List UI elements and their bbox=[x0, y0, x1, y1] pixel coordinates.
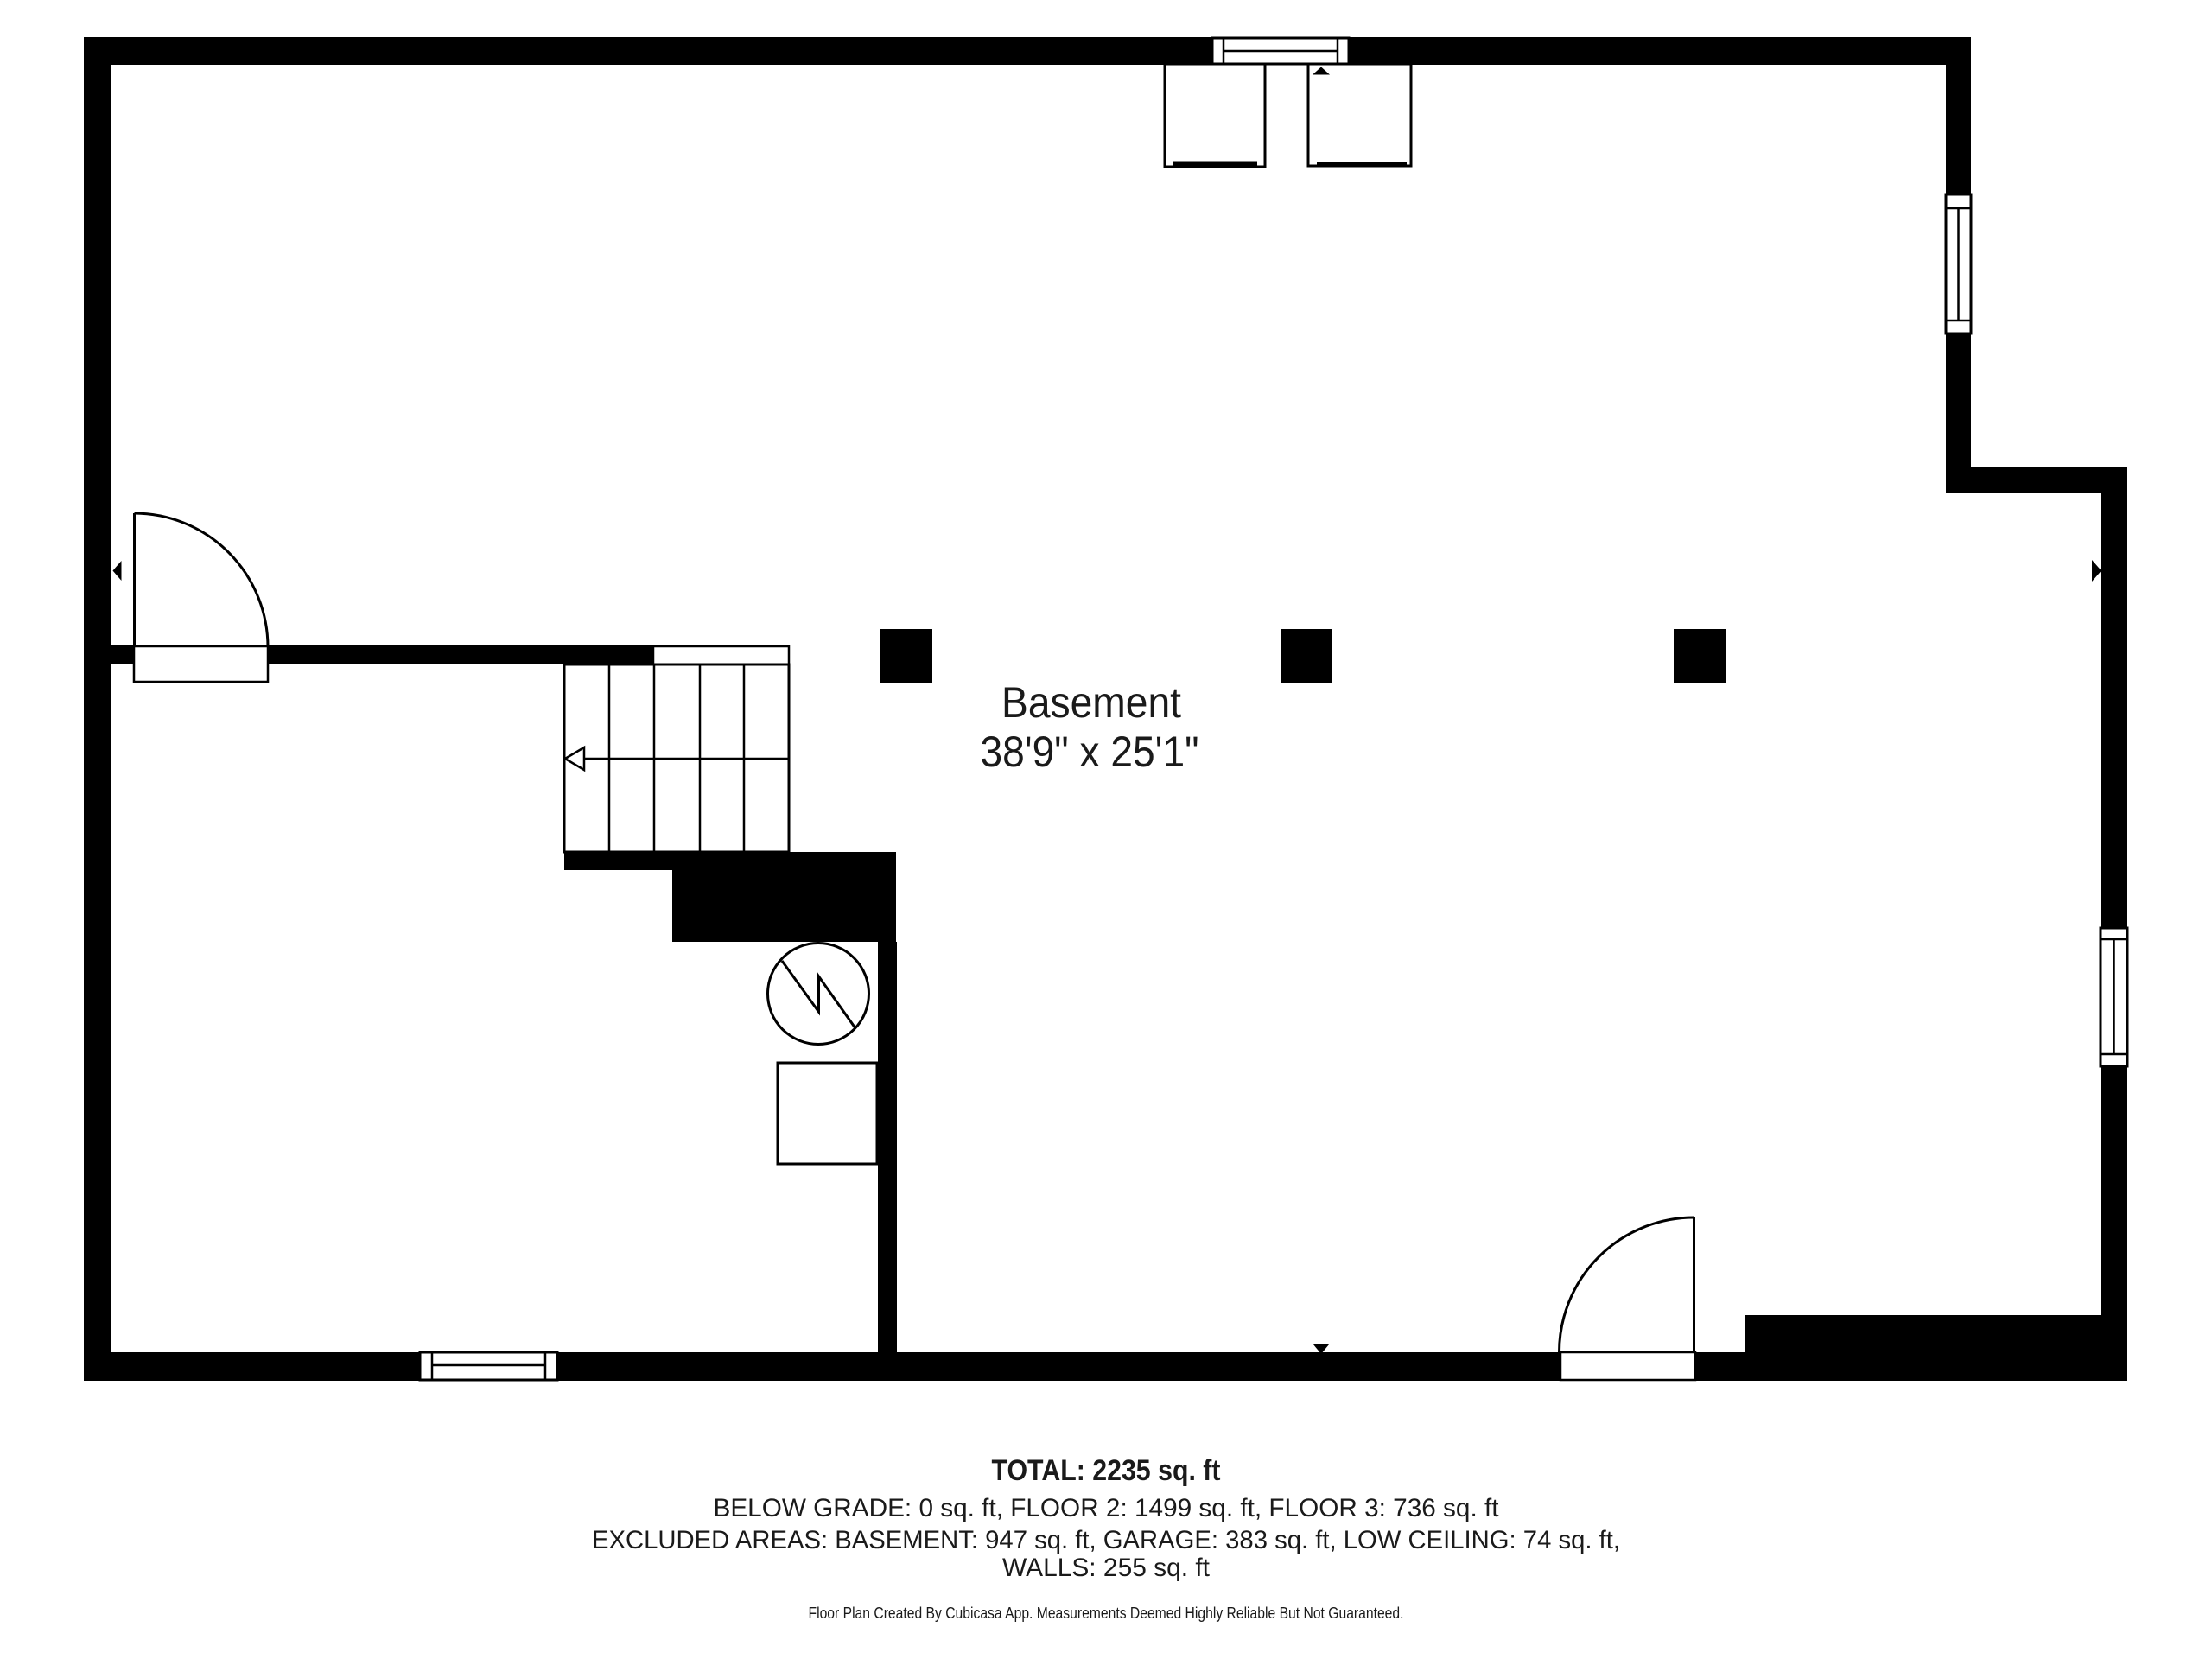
svg-text:Floor Plan Created By Cubicasa: Floor Plan Created By Cubicasa App. Meas… bbox=[809, 1605, 1404, 1622]
svg-text:WALLS: 255 sq. ft: WALLS: 255 sq. ft bbox=[1002, 1554, 1211, 1582]
svg-text:BELOW GRADE: 0 sq. ft, FLOOR 2: BELOW GRADE: 0 sq. ft, FLOOR 2: 1499 sq.… bbox=[714, 1494, 1500, 1522]
svg-text:EXCLUDED AREAS: BASEMENT: 947: EXCLUDED AREAS: BASEMENT: 947 sq. ft, GA… bbox=[592, 1526, 1620, 1554]
svg-text:Basement: Basement bbox=[1001, 678, 1181, 727]
svg-text:TOTAL: 2235 sq. ft: TOTAL: 2235 sq. ft bbox=[992, 1454, 1221, 1487]
svg-text:38'9" x 25'1": 38'9" x 25'1" bbox=[981, 728, 1199, 776]
